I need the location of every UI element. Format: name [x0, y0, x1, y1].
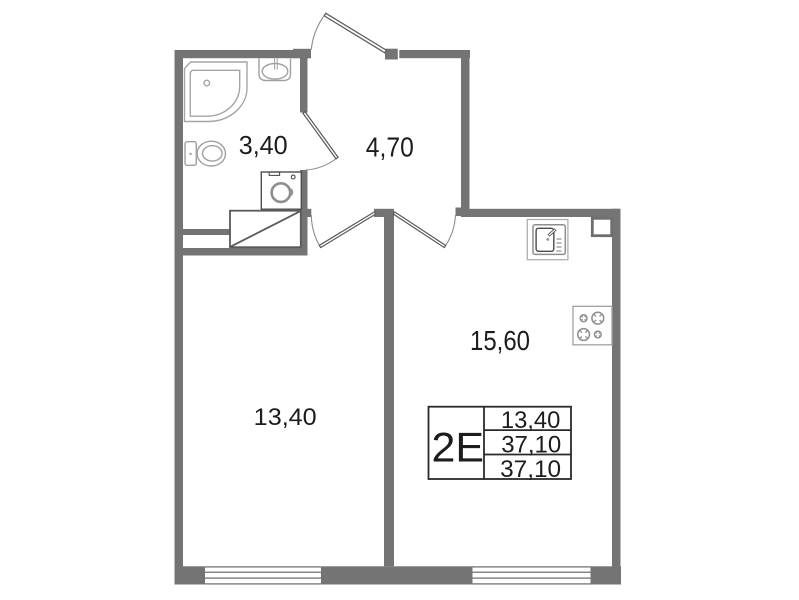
- svg-text:13,40: 13,40: [501, 407, 561, 434]
- svg-text:37,10: 37,10: [500, 456, 561, 483]
- svg-text:13,40: 13,40: [254, 404, 317, 431]
- svg-text:37,10: 37,10: [501, 431, 561, 458]
- svg-text:2E: 2E: [432, 423, 485, 470]
- svg-text:4,70: 4,70: [366, 132, 414, 163]
- svg-text:15,60: 15,60: [470, 325, 530, 356]
- svg-text:3,40: 3,40: [239, 130, 288, 160]
